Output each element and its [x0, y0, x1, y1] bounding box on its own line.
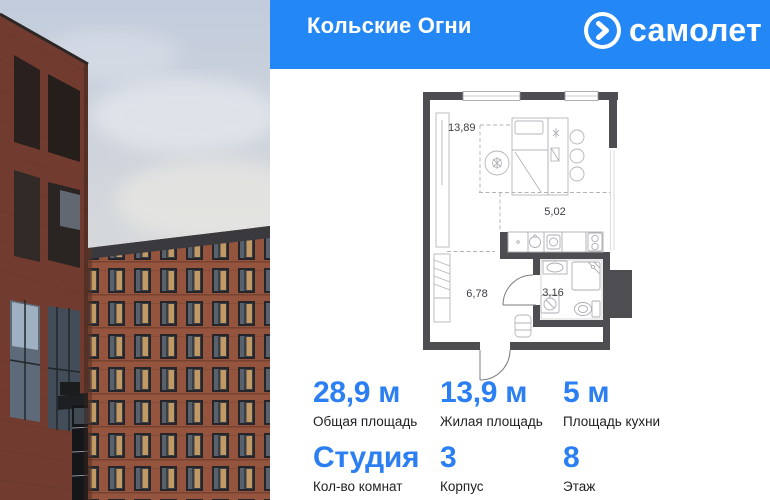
stat-building: 3 Корпус	[440, 443, 563, 495]
building-photo	[0, 0, 270, 500]
stat-label: Этаж	[563, 479, 703, 495]
stat-kitchen-area: 5 м Площадь кухни	[563, 378, 703, 430]
stat-value: 3	[440, 443, 563, 473]
stat-label: Кол-во комнат	[313, 479, 440, 495]
stat-rooms: Студия Кол-во комнат	[313, 443, 440, 495]
stat-label: Корпус	[440, 479, 563, 495]
stat-label: Жилая площадь	[440, 414, 563, 430]
room-area-label-living: 13,89	[448, 122, 476, 134]
stat-value: 13,9 м	[440, 378, 563, 408]
stat-living-area: 13,9 м Жилая площадь	[440, 378, 563, 430]
info-panel: Кольские Огни самолет	[270, 0, 770, 500]
room-area-label-bathroom: 3,16	[542, 287, 563, 299]
stat-label: Общая площадь	[313, 414, 440, 430]
brand-logo: самолет	[584, 12, 762, 49]
room-area-label-hallway: 6,78	[466, 288, 487, 300]
brand-name: самолет	[629, 12, 762, 49]
stat-label: Площадь кухни	[563, 414, 703, 430]
floor-plan: 13,89 5,02 6,78 3,16	[420, 90, 640, 390]
listing-card[interactable]: Кольские Огни самолет	[0, 0, 770, 500]
project-title: Кольские Огни	[307, 12, 472, 40]
chevron-right-icon	[584, 12, 621, 49]
room-area-label-kitchen: 5,02	[544, 206, 565, 218]
stat-total-area: 28,9 м Общая площадь	[313, 378, 440, 430]
stat-value: Студия	[313, 443, 440, 473]
stat-value: 28,9 м	[313, 378, 440, 408]
stat-value: 5 м	[563, 378, 703, 408]
header-bar: Кольские Огни самолет	[270, 0, 770, 69]
stat-floor: 8 Этаж	[563, 443, 703, 495]
stats-grid: 28,9 м Общая площадь 13,9 м Жилая площад…	[313, 378, 743, 495]
stat-value: 8	[563, 443, 703, 473]
